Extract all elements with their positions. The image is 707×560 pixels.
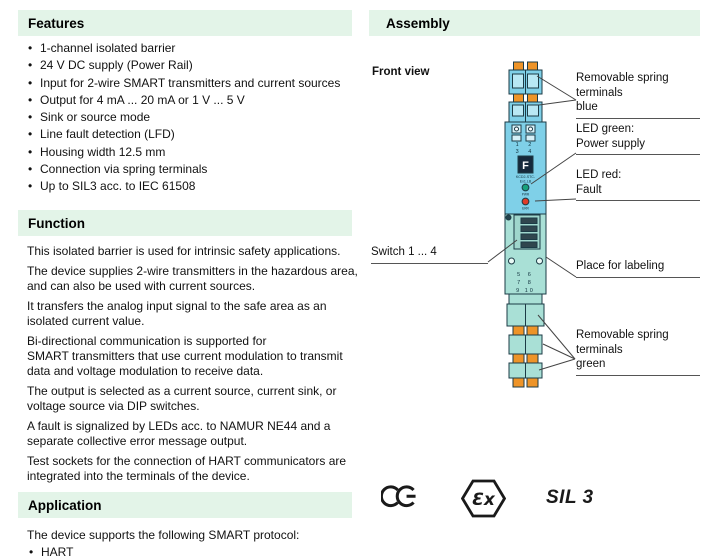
feature-item: Line fault detection (LFD) — [26, 126, 356, 143]
features-title: Features — [28, 16, 84, 31]
callout-switch: Switch 1 ... 4 — [371, 245, 488, 264]
feature-item: Input for 2-wire SMART transmitters and … — [26, 75, 356, 92]
terminal-numbers: 9 10 — [516, 288, 535, 294]
application-item: HART — [27, 545, 361, 560]
dip-switch — [521, 242, 537, 248]
sil3-mark: SIL 3 — [546, 487, 594, 509]
callout-leader-lines — [488, 76, 576, 370]
model-text: KCD2-STC- — [516, 175, 536, 179]
terminal-numbers: 7 8 — [517, 280, 534, 286]
terminal-numbers: 1 2 — [516, 142, 536, 148]
dip-switch-block — [514, 215, 540, 249]
ex-mark-icon: Ɛx — [461, 479, 506, 518]
model-text: Ex1.LB — [520, 180, 532, 184]
led-label: PWR — [522, 193, 530, 197]
terminal-clamp — [527, 354, 538, 363]
feature-item: Up to SIL3 acc. to IEC 61508 — [26, 178, 356, 195]
terminal-clamp — [513, 378, 524, 387]
function-text: This isolated barrier is used for intrin… — [27, 244, 361, 489]
features-section-header: Features — [18, 10, 352, 36]
feature-item: Sink or source mode — [26, 109, 356, 126]
terminal-clamp — [513, 326, 524, 335]
pepperl-fuchs-logo — [518, 156, 533, 173]
test-socket-icon — [512, 125, 521, 133]
dip-switch — [521, 226, 537, 232]
terminal-numbers: 5 6 — [517, 272, 534, 278]
terminal-clamp — [513, 354, 524, 363]
terminal-screw — [528, 94, 538, 102]
paragraph: This isolated barrier is used for intrin… — [27, 244, 361, 259]
feature-item: 1-channel isolated barrier — [26, 40, 356, 57]
application-list: HART — [27, 545, 361, 560]
feature-item: Connection via spring terminals — [26, 161, 356, 178]
dip-switch — [521, 218, 537, 224]
assembly-section-header: Assembly — [369, 10, 700, 36]
function-section-header: Function — [18, 210, 352, 236]
spring-terminal-block-green — [509, 335, 542, 354]
logo-letter: F — [522, 160, 529, 172]
application-text: The device supports the following SMART … — [27, 528, 361, 560]
ex-mark-text: Ɛx — [472, 490, 496, 510]
terminal-numbers: 3 4 — [516, 149, 536, 155]
front-view-label: Front view — [372, 66, 430, 78]
led-label: ERR — [522, 207, 529, 211]
labeling-hole — [509, 258, 515, 264]
test-socket-icon — [526, 125, 535, 133]
paragraph: A fault is signalized by LEDs acc. to NA… — [27, 419, 361, 449]
features-list: 1-channel isolated barrier 24 V DC suppl… — [26, 40, 356, 196]
power-led-green — [522, 184, 529, 191]
paragraph: Test sockets for the connection of HART … — [27, 454, 361, 484]
callout-terminals-blue: Removable spring terminals blue — [576, 71, 700, 119]
application-intro: The device supports the following SMART … — [27, 528, 361, 543]
device-body-lower — [505, 214, 546, 294]
spring-terminal-block-blue — [509, 70, 542, 94]
terminal-clamp — [527, 326, 538, 335]
dip-switch — [521, 234, 537, 240]
feature-item: Housing width 12.5 mm — [26, 144, 356, 161]
callout-place-for-labeling: Place for labeling — [576, 259, 700, 278]
ce-mark-icon — [381, 484, 417, 509]
terminal-clamp — [527, 378, 538, 387]
terminal-screw — [528, 62, 538, 71]
device-body-upper — [505, 122, 546, 214]
labeling-hole — [537, 258, 543, 264]
function-title: Function — [28, 216, 85, 231]
terminal-screw — [514, 94, 524, 102]
application-title: Application — [28, 498, 102, 513]
spring-terminal-block-blue — [509, 102, 542, 122]
fault-led-red — [522, 198, 529, 205]
test-socket-icon — [512, 295, 521, 303]
terminal-screw — [514, 62, 524, 71]
paragraph: Bi-directional communication is supporte… — [27, 334, 361, 379]
spring-terminal-block-green — [507, 304, 544, 326]
application-section-header: Application — [18, 492, 352, 518]
spring-terminal-block-green — [509, 363, 542, 378]
callout-led-red: LED red: Fault — [576, 168, 700, 201]
isolated-barrier-device-drawing — [505, 62, 546, 387]
callout-led-green: LED green: Power supply — [576, 122, 700, 155]
paragraph: The device supplies 2-wire transmitters … — [27, 264, 361, 294]
feature-item: 24 V DC supply (Power Rail) — [26, 57, 356, 74]
paragraph: It transfers the analog input signal to … — [27, 299, 361, 329]
assembly-title: Assembly — [386, 16, 450, 31]
paragraph: The output is selected as a current sour… — [27, 384, 361, 414]
feature-item: Output for 4 mA ... 20 mA or 1 V ... 5 V — [26, 92, 356, 109]
test-socket-icon — [526, 295, 535, 303]
callout-terminals-green: Removable spring terminals green — [576, 328, 700, 376]
